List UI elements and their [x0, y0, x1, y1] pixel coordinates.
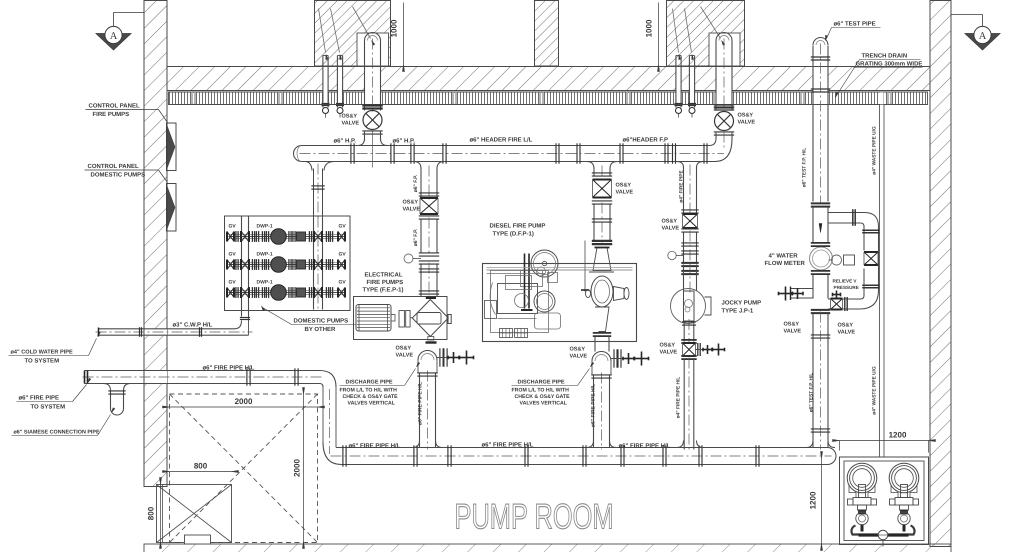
svg-text:VALVE: VALVE	[403, 207, 421, 213]
svg-text:DWP-1: DWP-1	[257, 224, 273, 230]
svg-text:DWP-1: DWP-1	[257, 280, 273, 286]
svg-text:ø6" FIRE PIPE H/L: ø6" FIRE PIPE H/L	[482, 442, 534, 449]
svg-text:RELIEVE V: RELIEVE V	[833, 279, 858, 284]
svg-text:OS&Y: OS&Y	[342, 114, 358, 120]
svg-text:VALVE: VALVE	[616, 190, 634, 196]
svg-text:OS&Y: OS&Y	[396, 346, 412, 352]
svg-text:OS&Y: OS&Y	[738, 113, 754, 119]
svg-text:DISCHARGE PIPE: DISCHARGE PIPE	[346, 380, 393, 386]
svg-text:DOMESTIC PUMPS: DOMESTIC PUMPS	[91, 172, 146, 179]
svg-text:VALVE: VALVE	[396, 353, 414, 359]
svg-text:VALVE: VALVE	[838, 330, 856, 336]
svg-text:TYPE J.P-1: TYPE J.P-1	[722, 308, 754, 315]
svg-text:ø6" TEST F.P. H/L: ø6" TEST F.P. H/L	[802, 148, 808, 188]
svg-text:BY OTHER: BY OTHER	[305, 326, 337, 333]
svg-text:GV: GV	[339, 224, 347, 230]
svg-text:ELECTRICAL: ELECTRICAL	[365, 272, 403, 279]
svg-text:FIRE PUMPS: FIRE PUMPS	[93, 111, 130, 118]
svg-text:2000: 2000	[293, 459, 302, 477]
svg-text:TO SYSTEM: TO SYSTEM	[25, 358, 60, 365]
svg-text:FIRE PUMPS: FIRE PUMPS	[367, 279, 404, 286]
svg-text:TYPE (D.F.P-1): TYPE (D.F.P-1)	[493, 231, 534, 238]
svg-text:1200: 1200	[809, 491, 818, 509]
svg-text:ø4" COLD WATER PIPE: ø4" COLD WATER PIPE	[11, 350, 73, 356]
svg-text:FLOW METER: FLOW METER	[765, 260, 806, 267]
svg-text:VALVE: VALVE	[570, 354, 588, 360]
svg-text:ø6" F.P.: ø6" F.P.	[413, 174, 419, 192]
svg-text:1000: 1000	[645, 19, 654, 37]
svg-text:1200: 1200	[889, 431, 907, 440]
svg-text:OS&Y: OS&Y	[570, 347, 586, 353]
svg-text:A: A	[110, 31, 118, 42]
svg-text:OS&Y: OS&Y	[616, 183, 632, 189]
svg-text:CHECK & OS&Y GATE: CHECK & OS&Y GATE	[343, 394, 399, 400]
svg-text:2000: 2000	[235, 397, 253, 406]
svg-text:ø6"HEADER F.P: ø6"HEADER F.P	[623, 137, 669, 144]
svg-text:ø6" TEST PIPE: ø6" TEST PIPE	[834, 21, 876, 28]
svg-text:OS&Y: OS&Y	[784, 322, 800, 328]
svg-text:4" WATER: 4" WATER	[769, 253, 799, 260]
svg-text:DWP-1: DWP-1	[257, 252, 273, 258]
svg-text:GV: GV	[229, 252, 237, 258]
svg-text:ø3" C.W.P H/L: ø3" C.W.P H/L	[173, 322, 213, 329]
svg-text:ø6" H.P.: ø6" H.P.	[334, 138, 357, 145]
svg-text:CONTROL PANEL: CONTROL PANEL	[89, 103, 140, 110]
svg-text:GRATING 300mm WIDE: GRATING 300mm WIDE	[856, 61, 923, 68]
svg-text:A: A	[979, 31, 987, 42]
svg-text:VALVES VERTICAL: VALVES VERTICAL	[520, 401, 568, 407]
svg-text:OS&Y: OS&Y	[838, 323, 854, 329]
svg-text:FROM L/L TO H/L WITH: FROM L/L TO H/L WITH	[512, 388, 570, 394]
svg-text:ø6" H.P.: ø6" H.P.	[393, 138, 416, 145]
svg-text:VALVE: VALVE	[342, 121, 360, 127]
svg-text:ø6" SIAMESE CONNECTION PIPE: ø6" SIAMESE CONNECTION PIPE	[14, 430, 101, 436]
svg-text:ø4" FIRE PIPE: ø4" FIRE PIPE	[679, 170, 685, 203]
svg-text:800: 800	[194, 462, 208, 471]
svg-text:VALVE: VALVE	[660, 350, 678, 356]
svg-text:ø4" WASTE PIPE U/G: ø4" WASTE PIPE U/G	[872, 366, 878, 415]
svg-text:GV: GV	[229, 224, 237, 230]
svg-text:OS&Y: OS&Y	[403, 200, 419, 206]
svg-text:FROM L/L TO H/L WITH: FROM L/L TO H/L WITH	[340, 388, 398, 394]
svg-text:DISCHARGE PIPE: DISCHARGE PIPE	[518, 380, 565, 386]
svg-text:JOCKY PUMP: JOCKY PUMP	[722, 300, 762, 307]
svg-text:ø6" FIRE PIPE H/L: ø6" FIRE PIPE H/L	[591, 384, 597, 427]
svg-text:ø6" FIRE PIPE H/L: ø6" FIRE PIPE H/L	[418, 382, 424, 425]
svg-text:VALVE: VALVE	[784, 329, 802, 335]
svg-text:GV: GV	[339, 252, 347, 258]
svg-text:ø6" F.P.: ø6" F.P.	[413, 228, 419, 246]
svg-text:ø4" FIRE PIPE H/L: ø4" FIRE PIPE H/L	[676, 377, 682, 419]
svg-text:800: 800	[147, 506, 156, 520]
svg-text:PUMP ROOM: PUMP ROOM	[455, 497, 614, 537]
svg-text:ø6" HEADER FIRE L/L: ø6" HEADER FIRE L/L	[470, 137, 533, 144]
svg-text:OS&Y: OS&Y	[662, 219, 678, 225]
svg-text:ø4" WASTE PIPE U/G: ø4" WASTE PIPE U/G	[872, 126, 878, 175]
svg-text:ø6" FIRE PIPE: ø6" FIRE PIPE	[19, 395, 60, 402]
svg-text:PRESSURE: PRESSURE	[834, 285, 859, 290]
svg-text:OS&Y: OS&Y	[660, 343, 676, 349]
svg-text:GV: GV	[229, 280, 237, 286]
svg-text:GV: GV	[339, 280, 347, 286]
svg-text:VALVE: VALVE	[662, 226, 680, 232]
svg-text:CHECK & OS&Y GATE: CHECK & OS&Y GATE	[515, 394, 571, 400]
svg-text:TYPE (F.E.P-1): TYPE (F.E.P-1)	[363, 287, 404, 294]
svg-text:TO SYSTEM: TO SYSTEM	[31, 404, 66, 411]
svg-text:ø6" TEST F.P. H/L: ø6" TEST F.P. H/L	[809, 373, 815, 413]
svg-text:DOMESTIC PUMPS: DOMESTIC PUMPS	[294, 318, 349, 325]
svg-text:ø6" FIRE PIPE H/L: ø6" FIRE PIPE H/L	[349, 443, 401, 450]
svg-text:VALVES VERTICAL: VALVES VERTICAL	[348, 401, 396, 407]
svg-text:VALVE: VALVE	[738, 120, 756, 126]
svg-text:TRENCH DRAIN: TRENCH DRAIN	[862, 53, 908, 60]
svg-text:CONTROL PANEL: CONTROL PANEL	[88, 163, 139, 170]
svg-text:1000: 1000	[390, 19, 399, 37]
svg-text:DIESEL FIRE PUMP: DIESEL FIRE PUMP	[490, 223, 546, 230]
